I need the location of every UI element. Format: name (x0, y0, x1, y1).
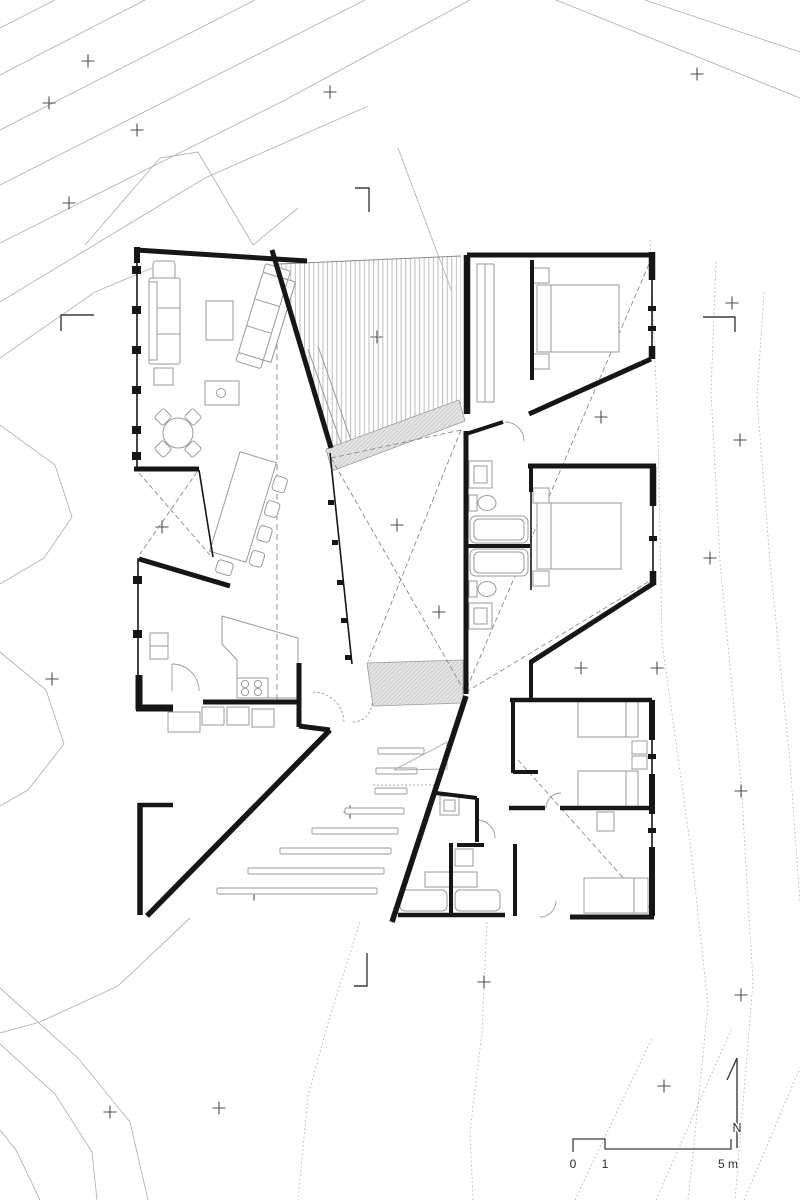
scale-bar: 0 1 5 m (570, 1139, 738, 1171)
contour-line (650, 240, 708, 1200)
survey-cross-icon (391, 519, 404, 532)
door-arc-bath (477, 820, 495, 838)
site-contour-lines-solid (0, 0, 800, 1200)
nightstand (533, 268, 549, 283)
survey-cross-icon (213, 1102, 226, 1115)
sofa-diagonal (236, 264, 298, 371)
contour-line (645, 0, 800, 52)
section-mark-bottom (354, 953, 367, 986)
courtyard-x-small (139, 472, 210, 555)
door-arc-bed3 (546, 793, 561, 808)
contour-line (575, 1038, 652, 1200)
door-arc-hall (505, 422, 524, 441)
bed-double (537, 285, 619, 352)
contour-line (0, 988, 148, 1200)
bedroom-3 (578, 701, 647, 807)
scale-label-0: 0 (570, 1157, 577, 1171)
bed-single (578, 771, 638, 807)
survey-cross-icon (704, 552, 717, 565)
contour-line (0, 268, 152, 358)
contour-line (253, 208, 298, 245)
contour-line (0, 0, 365, 185)
contour-line (470, 922, 487, 1200)
cabinet (168, 712, 200, 732)
section-mark-left (61, 315, 94, 331)
door-arc-entry2 (353, 703, 372, 722)
contour-line (0, 1044, 97, 1200)
survey-cross-icon (726, 297, 739, 310)
coffee-table (206, 301, 233, 340)
ramp-lower (367, 660, 463, 706)
survey-cross-icon (691, 68, 704, 81)
bed-single (578, 701, 638, 737)
bed-single (584, 878, 648, 913)
toilet-bowl (478, 496, 496, 511)
hearth (205, 381, 239, 405)
toilet-tank (469, 581, 477, 597)
survey-cross-icon (735, 785, 748, 798)
bedside-table (632, 756, 647, 769)
cabinet (227, 707, 249, 725)
terrace-steps (217, 748, 424, 894)
scale-label-5m: 5 m (718, 1157, 738, 1171)
contour-line (0, 652, 64, 806)
survey-cross-icon (104, 1106, 117, 1119)
door-arc-bed4 (540, 901, 556, 917)
survey-cross-icon (658, 1080, 671, 1093)
fridge (150, 633, 168, 646)
sight-line-2 (466, 579, 653, 692)
bedside-table (632, 741, 647, 754)
bed-double (537, 503, 621, 569)
north-indicator: N (727, 1058, 742, 1148)
bedroom-2 (533, 488, 621, 586)
contour-line (298, 922, 360, 1200)
toilet-bowl (478, 582, 496, 597)
dining-table (204, 452, 291, 584)
contour-line (744, 1068, 800, 1200)
scale-label-1: 1 (602, 1157, 609, 1171)
survey-cross-icon (478, 976, 491, 989)
survey-cross-icon (735, 989, 748, 1002)
section-mark-right (703, 317, 735, 332)
contour-line (0, 425, 72, 584)
survey-cross-icon (433, 606, 446, 619)
survey-cross-icon (63, 197, 76, 210)
floor-plan-sheet: N 0 1 5 m (0, 0, 800, 1200)
door-arc-entry (313, 692, 344, 723)
ramp-arrow (394, 742, 447, 770)
contour-line (0, 0, 470, 243)
survey-cross-icon (324, 86, 337, 99)
bedroom-4 (584, 812, 648, 913)
survey-cross-markers (43, 55, 748, 1119)
section-mark-top (355, 188, 369, 212)
survey-cross-icon (651, 662, 664, 675)
contour-line (0, 0, 145, 75)
bathtub (400, 890, 447, 911)
contour-line (0, 1130, 40, 1200)
round-table (154, 408, 202, 458)
nightstand (533, 488, 549, 503)
terrace-step (280, 848, 391, 854)
contour-line (711, 262, 753, 1200)
terrace-step (248, 868, 384, 874)
terrace-step (375, 788, 407, 794)
site-plan-canvas: N 0 1 5 m (0, 0, 800, 1200)
bathtub (455, 890, 500, 911)
terrace-step (378, 748, 424, 754)
scale-bar-icon (573, 1139, 731, 1152)
contour-line (0, 0, 255, 130)
terrace-step (345, 808, 404, 814)
terrace-step (217, 888, 377, 894)
terrace-step (312, 828, 398, 834)
nightstand (533, 354, 549, 369)
stove (237, 678, 268, 698)
sofa-left (149, 278, 180, 364)
cabinet (252, 709, 274, 727)
contour-line (656, 1030, 731, 1200)
survey-cross-icon (595, 411, 608, 424)
contour-line (85, 152, 253, 245)
tall-unit (150, 646, 168, 659)
contour-line (556, 0, 800, 98)
north-label: N (732, 1121, 741, 1135)
sofa-side-table (154, 368, 173, 385)
contour-line (757, 292, 800, 902)
survey-cross-icon (734, 434, 747, 447)
bathroom-upper (469, 461, 528, 543)
toilet-tank (469, 495, 477, 511)
survey-cross-icon (131, 124, 144, 137)
survey-cross-icon (46, 673, 59, 686)
sink (455, 849, 473, 866)
survey-cross-icon (575, 662, 588, 675)
contour-line (0, 0, 55, 28)
door-arc-kitchen (172, 664, 199, 691)
nightstand (533, 571, 549, 586)
desk (597, 812, 614, 831)
survey-cross-icon (156, 521, 169, 534)
survey-cross-icon (82, 55, 95, 68)
cabinet (202, 707, 224, 725)
bathroom-lower (469, 549, 528, 629)
contour-line (0, 918, 190, 1033)
